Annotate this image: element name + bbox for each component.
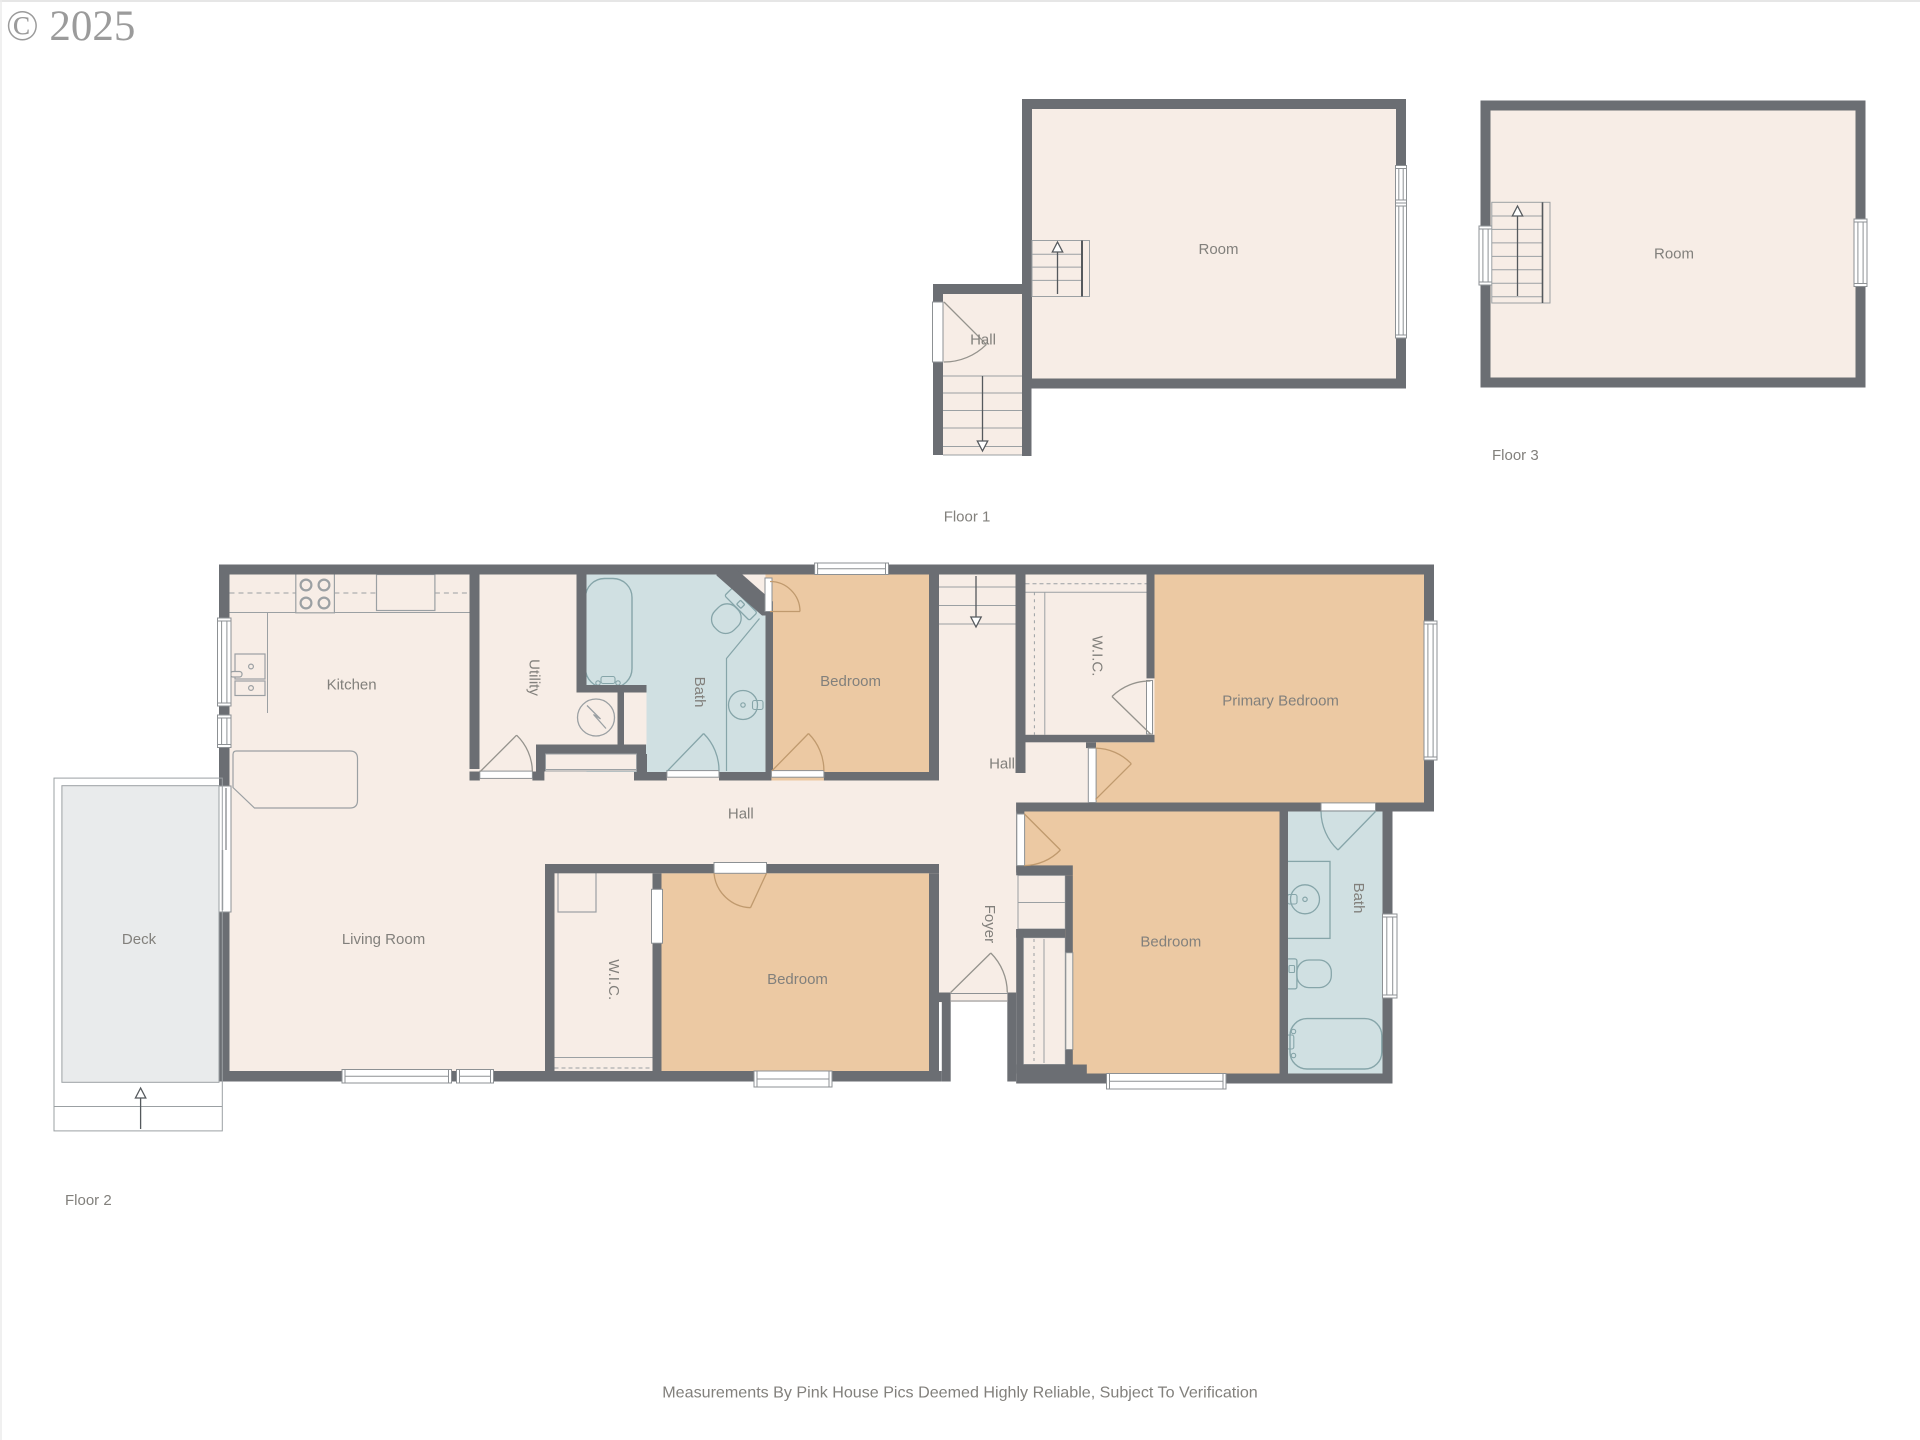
svg-text:Room: Room (1654, 246, 1694, 263)
svg-text:Bath: Bath (1350, 883, 1367, 914)
svg-text:W.I.C.: W.I.C. (1089, 636, 1106, 677)
svg-text:Hall: Hall (970, 332, 996, 349)
svg-text:Utility: Utility (526, 659, 543, 696)
svg-text:W.I.C.: W.I.C. (605, 959, 622, 1000)
svg-text:Measurements By Pink House Pic: Measurements By Pink House Pics Deemed H… (662, 1384, 1257, 1402)
svg-text:Living Room: Living Room (342, 931, 425, 948)
svg-text:Bedroom: Bedroom (767, 971, 828, 988)
svg-text:Room: Room (1198, 241, 1238, 258)
svg-text:Floor 3: Floor 3 (1492, 447, 1539, 464)
svg-text:Bedroom: Bedroom (1140, 934, 1201, 951)
svg-text:Bedroom: Bedroom (820, 673, 881, 690)
svg-text:Floor 1: Floor 1 (944, 509, 991, 526)
svg-text:Floor 2: Floor 2 (65, 1192, 112, 1209)
svg-text:Hall: Hall (728, 806, 754, 823)
svg-text:© 2025: © 2025 (6, 3, 135, 50)
svg-text:Bath: Bath (691, 677, 708, 708)
svg-text:Kitchen: Kitchen (327, 677, 377, 694)
svg-text:Hall: Hall (989, 756, 1015, 773)
svg-text:Deck: Deck (122, 931, 157, 948)
svg-text:Foyer: Foyer (981, 905, 998, 943)
svg-text:Primary Bedroom: Primary Bedroom (1222, 693, 1339, 710)
